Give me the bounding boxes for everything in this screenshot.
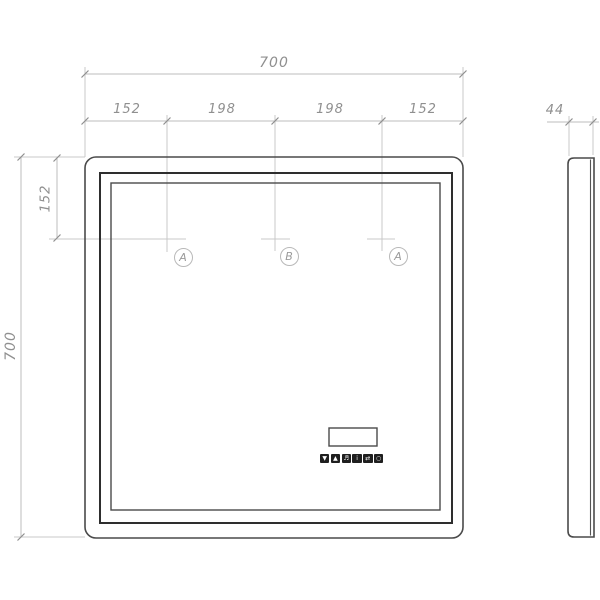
dim-label-width-total: 700 — [244, 55, 304, 71]
dim-label-segment-2: 198 — [192, 102, 252, 117]
dim-label-segment-1: 152 — [97, 102, 157, 117]
mirror-middle-frame — [100, 173, 452, 523]
clock-icon: ○ — [374, 454, 383, 463]
drawing-linework — [0, 0, 600, 600]
technical-drawing-canvas: 700 152 198 198 152 700 152 44 A B A ▼ ▲… — [0, 0, 600, 600]
marker-circle-a2: A — [389, 247, 408, 266]
info-icon: i — [352, 454, 361, 463]
music-note-icon: ♬ — [342, 454, 351, 463]
arrow-down-icon: ▼ — [320, 454, 329, 463]
dim-label-segment-4: 152 — [393, 102, 453, 117]
led-display-outline — [329, 428, 377, 446]
dimension-lines — [21, 74, 599, 537]
marker-b-label: B — [285, 250, 293, 263]
dim-label-segment-3: 198 — [300, 102, 360, 117]
arrow-up-icon: ▲ — [331, 454, 340, 463]
arrows-swap-icon: ⇄ — [363, 454, 372, 463]
dimension-ticks — [18, 71, 597, 541]
mirror-outer-frame — [85, 157, 463, 538]
marker-a2-label: A — [394, 250, 402, 263]
marker-circle-b: B — [280, 247, 299, 266]
marker-circle-a1: A — [174, 248, 193, 267]
dim-label-height-total: 700 — [3, 316, 19, 376]
dim-label-top-offset: 152 — [39, 169, 54, 229]
marker-a1-label: A — [179, 251, 187, 264]
control-buttons-row: ▼ ▲ ♬ i ⇄ ○ — [320, 454, 383, 463]
dim-label-depth: 44 — [525, 103, 585, 118]
